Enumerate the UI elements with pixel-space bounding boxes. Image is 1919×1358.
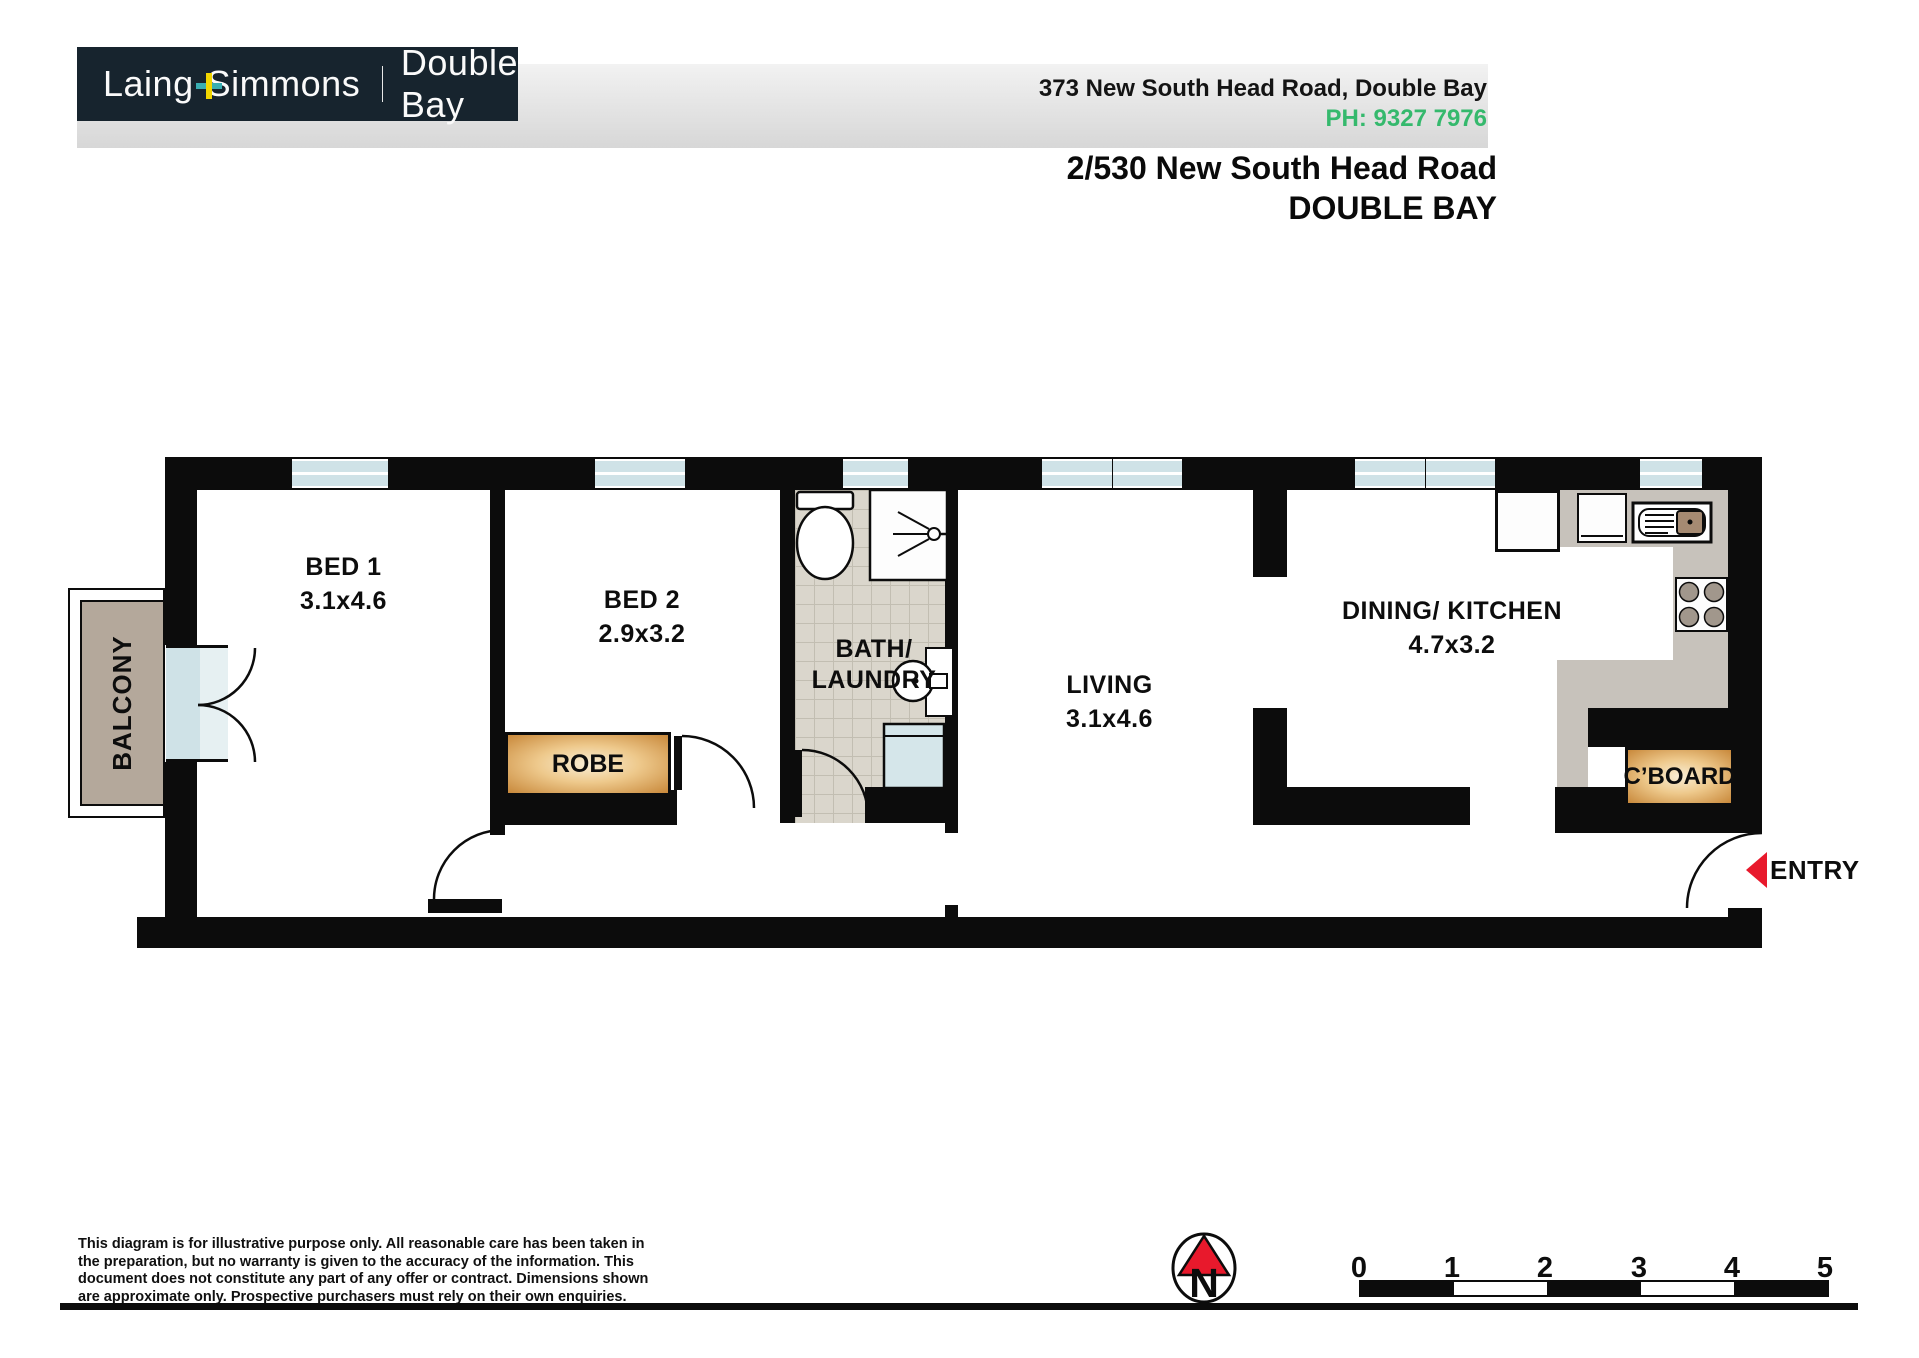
plan-symbols-layer: [0, 0, 1919, 1358]
scale-bar-segments: [1359, 1280, 1829, 1297]
door-bed1: [428, 830, 503, 913]
floorplan-page: Laing Simmons Double Bay 373 New South H…: [0, 0, 1919, 1358]
door-bath: [795, 750, 868, 817]
room-label-bed2: BED 2 2.9x3.2: [504, 583, 780, 651]
room-label-living: LIVING 3.1x4.6: [966, 668, 1253, 736]
entry-arrow-icon: [1746, 852, 1767, 888]
compass-letter: N: [1180, 1260, 1228, 1307]
toilet-icon: [797, 492, 853, 579]
shower-icon: [870, 490, 947, 580]
door-bed2: [674, 736, 754, 808]
scale-bar: 0 1 2 3 4 5: [1359, 1252, 1825, 1296]
washing-machine-icon: [884, 724, 944, 788]
sink-icon: [1633, 503, 1711, 542]
room-label-dining: DINING/ KITCHEN 4.7x3.2: [1287, 594, 1617, 662]
room-label-bath: BATH/ LAUNDRY: [795, 634, 953, 696]
room-label-bed1: BED 1 3.1x4.6: [197, 550, 490, 618]
french-door-arcs: [198, 648, 255, 762]
disclaimer-text: This diagram is for illustrative purpose…: [78, 1236, 648, 1306]
cooktop-burners: [1680, 583, 1724, 627]
footer-rule: [60, 1303, 1858, 1310]
entry-label: ENTRY: [1770, 855, 1860, 886]
